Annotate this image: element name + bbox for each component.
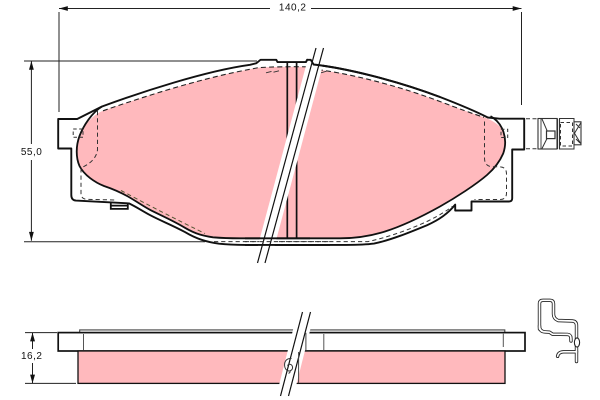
svg-text:16,2: 16,2	[21, 351, 42, 362]
svg-text:55,0: 55,0	[21, 147, 42, 158]
svg-text:140,2: 140,2	[279, 2, 307, 13]
